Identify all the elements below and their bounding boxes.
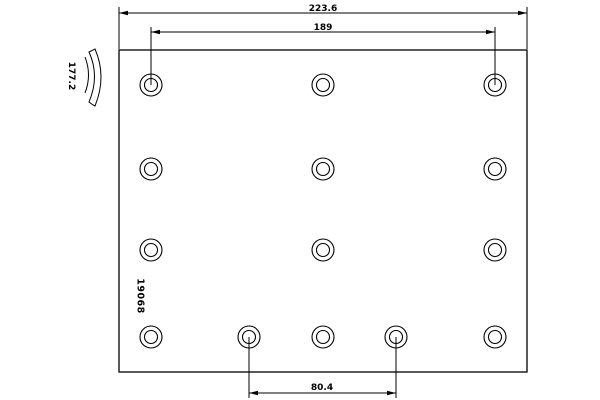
hole-inner xyxy=(489,244,502,257)
dimension-bottom-span-label: 80.4 xyxy=(311,383,333,393)
hole-inner xyxy=(145,331,158,344)
arrowhead-span-right xyxy=(486,30,495,34)
dimension-hole-span-label: 189 xyxy=(314,23,333,33)
arrowhead-total-left xyxy=(119,11,128,15)
hole-inner xyxy=(317,79,330,92)
profile-view xyxy=(85,49,101,106)
arrowhead-bottom-left xyxy=(249,391,258,395)
hole-inner xyxy=(317,331,330,344)
drawing-canvas: 223.6 189 80.4 177.2 19068 xyxy=(0,0,600,400)
arrowhead-bottom-right xyxy=(387,391,396,395)
hole-inner xyxy=(489,163,502,176)
part-number-label: 19068 xyxy=(135,278,146,314)
hole-inner xyxy=(317,244,330,257)
profile-back-arc xyxy=(85,57,89,93)
dimension-total-width-label: 223.6 xyxy=(309,4,337,14)
arrowhead-span-left xyxy=(151,30,160,34)
dimension-height-label: 177.2 xyxy=(66,62,76,90)
technical-drawing: 223.6 189 80.4 177.2 19068 xyxy=(0,0,600,400)
lining-outline xyxy=(119,50,527,372)
hole-inner xyxy=(489,331,502,344)
hole-inner xyxy=(317,163,330,176)
hole-inner xyxy=(145,163,158,176)
hole-inner xyxy=(145,244,158,257)
arrowhead-total-right xyxy=(518,11,527,15)
profile-band-arc xyxy=(89,49,101,106)
